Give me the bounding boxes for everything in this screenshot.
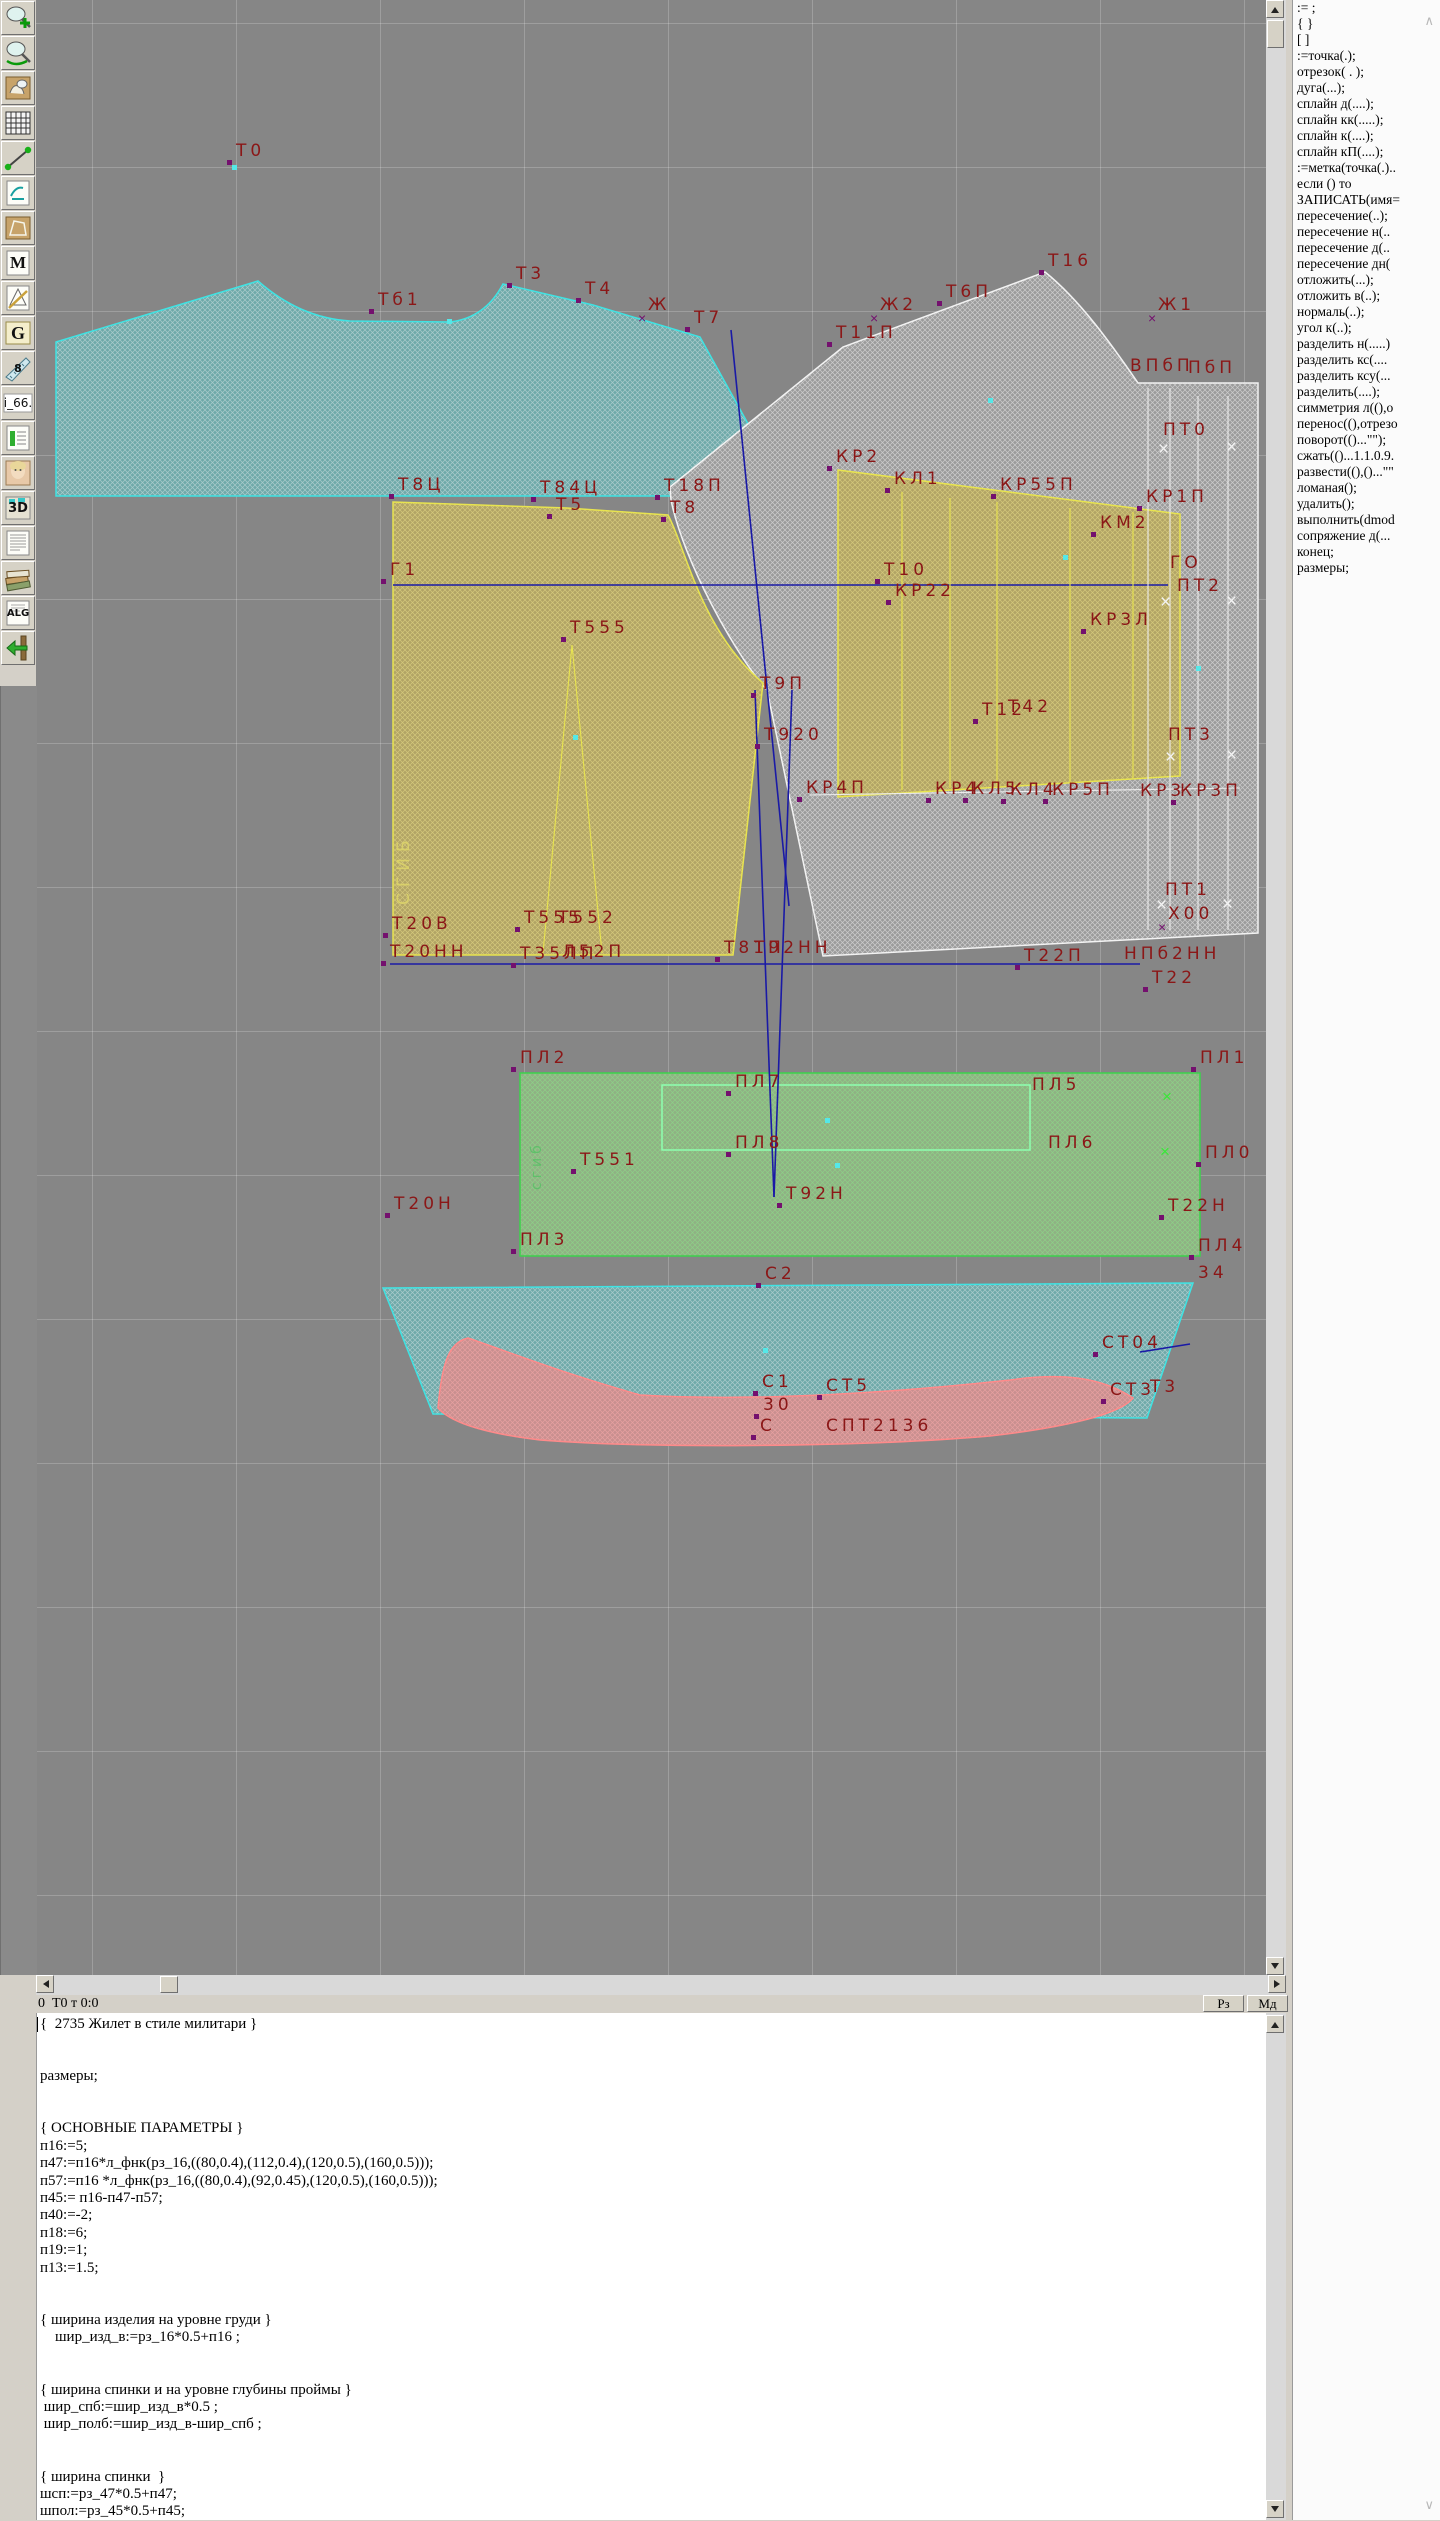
point-label-Т5: Т5: [556, 497, 585, 514]
point-marker: [963, 798, 968, 803]
grading-point: [1063, 555, 1068, 560]
pattern-sheet-icon-button[interactable]: [1, 211, 35, 245]
point-label-ПЛ6: ПЛ6: [1048, 1135, 1096, 1152]
code-line[interactable]: [40, 2295, 438, 2312]
threed-icon-glyph: 3D: [2, 492, 34, 524]
point-label-КР55П: КР55П: [1000, 477, 1077, 494]
point-label-ПЛ2: ПЛ2: [520, 1050, 568, 1067]
operator-item[interactable]: ломаная();: [1293, 480, 1440, 496]
point-marker: [661, 517, 666, 522]
point-label-Т42: Т42: [1008, 699, 1052, 716]
g-icon-button[interactable]: G: [1, 316, 35, 350]
point-label-ПЛ4: ПЛ4: [1198, 1238, 1246, 1255]
code-line[interactable]: [40, 2277, 438, 2294]
notch-x-mark: ×: [1226, 438, 1237, 457]
point-marker: [381, 961, 386, 966]
notch-x-mark-green: ×: [1160, 1143, 1170, 1160]
operator-item[interactable]: отложить(...);: [1293, 272, 1440, 288]
m-icon-glyph: M: [2, 247, 34, 279]
segment-icon-button[interactable]: [1, 141, 35, 175]
sidebar-scroll-up-icon[interactable]: ∧: [1424, 14, 1434, 29]
point-label-Т8: Т8: [670, 500, 699, 517]
point-label-КР2: КР2: [836, 449, 881, 466]
operator-item[interactable]: [ ]: [1293, 32, 1440, 48]
operator-item[interactable]: конец;: [1293, 544, 1440, 560]
exit-icon-button[interactable]: [1, 631, 35, 665]
point-label-Т3: Т3: [516, 266, 545, 283]
code-line[interactable]: шпол:=рз_45*0.5+п45;: [40, 2503, 438, 2520]
point-label-Т92Н: Т92Н: [786, 1186, 847, 1203]
m-icon-button[interactable]: M: [1, 246, 35, 280]
operator-item[interactable]: перенос((),отрезо: [1293, 416, 1440, 432]
i66-field-glyph: i_66.: [2, 387, 34, 419]
operator-item[interactable]: сплайн д(....);: [1293, 96, 1440, 112]
point-marker: [1137, 506, 1142, 511]
point-label-30: 30: [763, 1397, 793, 1414]
point-marker: [385, 1213, 390, 1218]
notch-x-mark: ×: [1165, 748, 1176, 767]
horizontal-scroll-thumb[interactable]: [160, 1976, 178, 1993]
point-marker: [1001, 799, 1006, 804]
point-label-КР4П: КР4П: [806, 780, 868, 797]
point-label-Ж1: Ж1: [1158, 297, 1195, 314]
point-marker: [1191, 1067, 1196, 1072]
point-label-С2: С2: [765, 1266, 796, 1283]
grid-icon-button[interactable]: [1, 106, 35, 140]
point-marker: [547, 514, 552, 519]
point-marker: [937, 301, 942, 306]
operator-item[interactable]: отрезок( . );: [1293, 64, 1440, 80]
point-label-Т11П: Т11П: [836, 325, 897, 342]
code-line[interactable]: п47:=п16*л_фнк(рз_16,((80,0.4),(112,0.4)…: [40, 2155, 438, 2172]
grading-point: [447, 319, 452, 324]
toolbar-empty-area: [0, 686, 37, 1975]
code-line[interactable]: [40, 2051, 438, 2068]
point-marker: [991, 494, 996, 499]
point-label-Т22: Т22: [1152, 970, 1196, 987]
point-label-КЛ1: КЛ1: [894, 471, 942, 488]
point-label-СТ5: СТ5: [826, 1378, 871, 1395]
point-marker: [511, 1067, 516, 1072]
point-marker: [726, 1091, 731, 1096]
scroll-down-button[interactable]: [1266, 1957, 1284, 1975]
point-label-Т16: Т16: [1048, 253, 1092, 270]
code-line[interactable]: [40, 2451, 438, 2468]
editor-scroll-down-button[interactable]: [1266, 2500, 1284, 2518]
operator-item[interactable]: сплайн кк(.....);: [1293, 112, 1440, 128]
point-marker: ×: [1148, 311, 1156, 325]
operators-sidebar: := ;{ }[ ]:=точка(.);отрезок( . );дуга(.…: [1292, 0, 1440, 2520]
status-coordinates: 0 Т0 т 0:0: [38, 1996, 99, 2012]
operator-item[interactable]: разделить(....);: [1293, 384, 1440, 400]
point-label-Л52П: Л52П: [562, 944, 625, 961]
grading-point: [835, 1163, 840, 1168]
code-line[interactable]: шир_спб:=шир_изд_в*0.5 ;: [40, 2399, 438, 2416]
point-label-ПЛ1: ПЛ1: [1200, 1050, 1248, 1067]
code-line[interactable]: п45:= п16-п47-п57;: [40, 2190, 438, 2207]
ruler-icon-glyph: 8: [2, 352, 34, 384]
point-label-КР3П: КР3П: [1180, 783, 1242, 800]
code-line[interactable]: шир_изд_в:=рз_16*0.5+п16 ;: [40, 2329, 438, 2346]
operator-item[interactable]: поворот(()..."");: [1293, 432, 1440, 448]
canvas-vertical-scrollbar[interactable]: [1266, 0, 1286, 1975]
point-label-Т18П: Т18П: [664, 478, 725, 495]
up-arrow-icon: [1271, 2018, 1279, 2028]
grading-point: [573, 735, 578, 740]
g-icon-glyph: G: [2, 317, 34, 349]
scroll-up-button[interactable]: [1266, 0, 1284, 18]
point-marker: [1093, 1352, 1098, 1357]
algorithm-editor-panel[interactable]: { 2735 Жилет в стиле милитари } размеры;…: [0, 2013, 1292, 2520]
operator-item[interactable]: нормаль(..);: [1293, 304, 1440, 320]
point-label-Т20В: Т20В: [392, 916, 452, 933]
status-bar: 0 Т0 т 0:0 Рз Мд: [0, 1995, 1292, 2013]
point-marker: [1101, 1399, 1106, 1404]
code-line[interactable]: п19:=1;: [40, 2242, 438, 2259]
code-line[interactable]: п16:=5;: [40, 2138, 438, 2155]
point-marker: [751, 1435, 756, 1440]
operator-item[interactable]: := ;: [1293, 0, 1440, 16]
operator-item[interactable]: разделить ксу(...: [1293, 368, 1440, 384]
code-line[interactable]: п13:=1.5;: [40, 2260, 438, 2277]
point-marker: [753, 1391, 758, 1396]
point-marker: [507, 283, 512, 288]
point-label-Г1: Г1: [390, 562, 419, 579]
operator-item[interactable]: пересечение дн(: [1293, 256, 1440, 272]
point-marker: ×: [638, 311, 646, 325]
point-marker: ×: [1158, 920, 1166, 934]
point-label-Т555: Т555: [570, 620, 629, 637]
algorithm-text[interactable]: { 2735 Жилет в стиле милитари } размеры;…: [40, 2016, 438, 2521]
point-label-ПТ2: ПТ2: [1177, 578, 1223, 595]
point-marker: [1159, 1215, 1164, 1220]
code-line[interactable]: [40, 2434, 438, 2451]
point-label-Т6П: Т6П: [946, 284, 992, 301]
right-arrow-icon: [1274, 1980, 1284, 1988]
code-line[interactable]: [40, 2347, 438, 2364]
code-line[interactable]: { ширина изделия на уровне груди }: [40, 2312, 438, 2329]
operator-item[interactable]: дуга(...);: [1293, 80, 1440, 96]
code-line[interactable]: шсп:=рз_47*0.5+п47;: [40, 2486, 438, 2503]
point-label-ПЛ5: ПЛ5: [1032, 1077, 1080, 1094]
down-arrow-icon: [1271, 1963, 1279, 1973]
point-marker: [885, 488, 890, 493]
md-button[interactable]: Мд: [1247, 1995, 1288, 2012]
notch-x-mark: ×: [1160, 593, 1171, 612]
operator-item[interactable]: сплайн кП(....);: [1293, 144, 1440, 160]
grading-point: [232, 165, 237, 170]
point-label-Т20Н: Т20Н: [394, 1196, 455, 1213]
point-label-С1: С1: [762, 1374, 793, 1391]
library-icon-button[interactable]: [1, 561, 35, 595]
notch-x-mark: ×: [1226, 592, 1237, 611]
point-marker: [886, 600, 891, 605]
operator-item[interactable]: разделить н(.....): [1293, 336, 1440, 352]
operator-item[interactable]: выполнить(dmod: [1293, 512, 1440, 528]
scroll-left-button[interactable]: [36, 1975, 54, 1993]
point-marker: [973, 719, 978, 724]
operator-item[interactable]: если () то: [1293, 176, 1440, 192]
operator-item[interactable]: ЗАПИСАТЬ(имя=: [1293, 192, 1440, 208]
point-label-Ж: Ж: [648, 297, 670, 314]
operator-item[interactable]: пересечение н(..: [1293, 224, 1440, 240]
code-line[interactable]: { 2735 Жилет в стиле милитари }: [40, 2016, 438, 2033]
point-label-ВПбП: ВПбП: [1130, 358, 1194, 375]
point-label-НПб2НН: НПб2НН: [1124, 946, 1220, 963]
point-marker: [383, 933, 388, 938]
point-label-КР5П: КР5П: [1052, 782, 1114, 799]
vertical-scroll-thumb[interactable]: [1267, 20, 1284, 48]
operator-item[interactable]: сжать(()...1.1.0.9.: [1293, 448, 1440, 464]
point-label-Т8Ц: Т8Ц: [398, 477, 444, 494]
point-marker: [511, 1249, 516, 1254]
grading-point: [988, 398, 993, 403]
point-label-Ж2: Ж2: [880, 297, 917, 314]
operator-item[interactable]: :=метка(точка(.)..: [1293, 160, 1440, 176]
code-line[interactable]: [40, 2033, 438, 2050]
editor-left-margin: [0, 2013, 37, 2520]
point-marker: [827, 342, 832, 347]
point-marker: [381, 579, 386, 584]
down-arrow-icon: [1271, 2506, 1279, 2516]
point-label-КМ2: КМ2: [1100, 515, 1150, 532]
point-label-Т20НН: Т20НН: [390, 944, 468, 961]
code-line[interactable]: п18:=6;: [40, 2225, 438, 2242]
point-label-ПЛ0: ПЛ0: [1205, 1145, 1253, 1162]
point-marker: [777, 1203, 782, 1208]
point-label-ПЛ8: ПЛ8: [735, 1135, 783, 1152]
point-label-Т4: Т4: [585, 281, 614, 298]
point-label-ПЛ7: ПЛ7: [735, 1074, 783, 1091]
point-label-ПТ3: ПТ3: [1168, 727, 1214, 744]
point-marker: [756, 1283, 761, 1288]
left-arrow-icon: [39, 1980, 49, 1988]
point-marker: [1143, 987, 1148, 992]
point-marker: [817, 1395, 822, 1400]
code-line[interactable]: { ОСНОВНЫЕ ПАРАМЕТРЫ }: [40, 2120, 438, 2137]
point-marker: [751, 693, 756, 698]
operator-item[interactable]: сопряжение д(...: [1293, 528, 1440, 544]
editor-scroll-up-button[interactable]: [1266, 2015, 1284, 2033]
code-line[interactable]: п40:=-2;: [40, 2207, 438, 2224]
notch-x-mark: ×: [1226, 746, 1237, 765]
point-marker: [511, 963, 516, 968]
point-marker: [755, 744, 760, 749]
point-label-Т22Н: Т22Н: [1168, 1198, 1229, 1215]
point-label-Т22П: Т22П: [1024, 948, 1085, 965]
point-marker: [1043, 799, 1048, 804]
operator-item[interactable]: отложить в(..);: [1293, 288, 1440, 304]
point-marker: [685, 327, 690, 332]
canvas-horizontal-scrollbar[interactable]: [36, 1975, 1286, 1995]
operator-item[interactable]: размеры;: [1293, 560, 1440, 576]
point-label-КР3: КР3: [1140, 783, 1185, 800]
point-label-С: С: [760, 1418, 776, 1435]
point-label-Т10: Т10: [884, 562, 928, 579]
point-marker: [1015, 965, 1020, 970]
patterns-icon-button[interactable]: [1, 71, 35, 105]
code-line[interactable]: п57:=п16 *л_фнк(рз_16,((80,0.4),(92,0.45…: [40, 2173, 438, 2190]
code-line[interactable]: [40, 2103, 438, 2120]
point-label-ПбП: ПбП: [1188, 360, 1236, 377]
grading-point: [825, 1118, 830, 1123]
alg-icon-glyph: ALG: [2, 597, 34, 629]
point-label-ПТ0: ПТ0: [1163, 422, 1209, 439]
operator-item[interactable]: удалить();: [1293, 496, 1440, 512]
point-label-КР3Л: КР3Л: [1090, 612, 1152, 629]
point-marker: [797, 797, 802, 802]
code-line[interactable]: шир_полб:=шир_изд_в-шир_спб ;: [40, 2416, 438, 2433]
editor-vertical-scrollbar[interactable]: [1266, 2013, 1286, 2520]
point-label-Т551: Т551: [580, 1152, 639, 1169]
point-marker: [515, 927, 520, 932]
point-marker: [715, 957, 720, 962]
point-label-ПЛ3: ПЛ3: [520, 1232, 568, 1249]
point-marker: [1081, 629, 1086, 634]
table-icon-button[interactable]: [1, 421, 35, 455]
point-label-СТ04: СТ04: [1102, 1335, 1162, 1352]
point-label-КР22: КР22: [895, 583, 955, 600]
grading-point: [1196, 666, 1201, 671]
zoom-in-icon-button[interactable]: [1, 1, 35, 35]
scroll-right-button[interactable]: [1268, 1975, 1286, 1993]
notch-x-mark: ×: [1158, 440, 1169, 459]
operator-item[interactable]: пересечение(..);: [1293, 208, 1440, 224]
point-marker: [1039, 270, 1044, 275]
ruler-icon-button[interactable]: 8: [1, 351, 35, 385]
notch-x-mark-green: ×: [1162, 1088, 1172, 1105]
notch-x-mark: ×: [1156, 896, 1167, 915]
point-label-34: 34: [1198, 1265, 1228, 1282]
point-label-Т552: Т552: [558, 910, 617, 927]
drafting-icon-button[interactable]: [1, 281, 35, 315]
operator-item[interactable]: развести((),()..."": [1293, 464, 1440, 480]
notch-x-mark: ×: [1222, 895, 1233, 914]
operator-item[interactable]: симметрия л((),о: [1293, 400, 1440, 416]
sidebar-scroll-down-icon[interactable]: ∨: [1424, 2498, 1434, 2513]
point-label-Т920: Т920: [764, 727, 823, 744]
point-label-Т3: Т3: [1150, 1379, 1179, 1396]
operator-item[interactable]: угол к(..);: [1293, 320, 1440, 336]
up-arrow-icon: [1271, 3, 1279, 13]
point-label-СПТ2136: СПТ2136: [826, 1418, 932, 1435]
point-marker: [875, 579, 880, 584]
point-label-КЛ4: КЛ4: [1010, 782, 1058, 799]
point-marker: [1189, 1255, 1194, 1260]
i66-field-button[interactable]: i_66.: [1, 386, 35, 420]
code-line[interactable]: { ширина спинки }: [40, 2469, 438, 2486]
point-marker: [369, 309, 374, 314]
alg-icon-button[interactable]: ALG: [1, 596, 35, 630]
code-line[interactable]: { ширина спинки и на уровне глубины прой…: [40, 2382, 438, 2399]
operator-item[interactable]: { }: [1293, 16, 1440, 32]
point-marker: [655, 495, 660, 500]
point-label-Тб1: Тб1: [378, 292, 422, 309]
point-label-Т0: Т0: [236, 143, 265, 160]
code-line[interactable]: размеры;: [40, 2068, 438, 2085]
point-label-сгиб: сгиб: [530, 1141, 544, 1190]
grading-point: [763, 1348, 768, 1353]
point-marker: [1171, 800, 1176, 805]
operator-item[interactable]: :=точка(.);: [1293, 48, 1440, 64]
point-label-ПТ1: ПТ1: [1165, 882, 1211, 899]
point-label-Т9П: Т9П: [760, 676, 806, 693]
point-marker: [1091, 532, 1096, 537]
code-line[interactable]: [40, 2086, 438, 2103]
sketch-icon-button[interactable]: [1, 176, 35, 210]
point-marker: [726, 1152, 731, 1157]
threed-icon-button[interactable]: 3D: [1, 491, 35, 525]
point-label-Т92НН: Т92НН: [754, 940, 832, 957]
point-label-Т7: Т7: [694, 310, 723, 327]
point-label-СТ3: СТ3: [1110, 1382, 1155, 1399]
operator-item[interactable]: сплайн к(....);: [1293, 128, 1440, 144]
point-label-ГО: ГО: [1170, 555, 1202, 572]
zoom-icon-button[interactable]: [1, 36, 35, 70]
point-marker: [576, 298, 581, 303]
text-cursor: [37, 2017, 38, 2032]
point-marker: [754, 1414, 759, 1419]
point-marker: [531, 497, 536, 502]
point-marker: [571, 1169, 576, 1174]
rz-button[interactable]: Рз: [1203, 1995, 1244, 2012]
point-label-Х00: Х00: [1168, 906, 1213, 923]
textdoc-icon-button[interactable]: [1, 526, 35, 560]
portrait-icon-button[interactable]: [1, 456, 35, 490]
operator-item[interactable]: разделить кс(....: [1293, 352, 1440, 368]
point-marker: [389, 494, 394, 499]
point-marker: [926, 798, 931, 803]
point-label-КР1П: КР1П: [1146, 489, 1208, 506]
code-line[interactable]: [40, 2364, 438, 2381]
point-marker: [1196, 1162, 1201, 1167]
point-marker: [827, 466, 832, 471]
point-marker: [561, 637, 566, 642]
point-label-СГИБ: СГИБ: [396, 834, 413, 905]
operator-item[interactable]: пересечение д(..: [1293, 240, 1440, 256]
